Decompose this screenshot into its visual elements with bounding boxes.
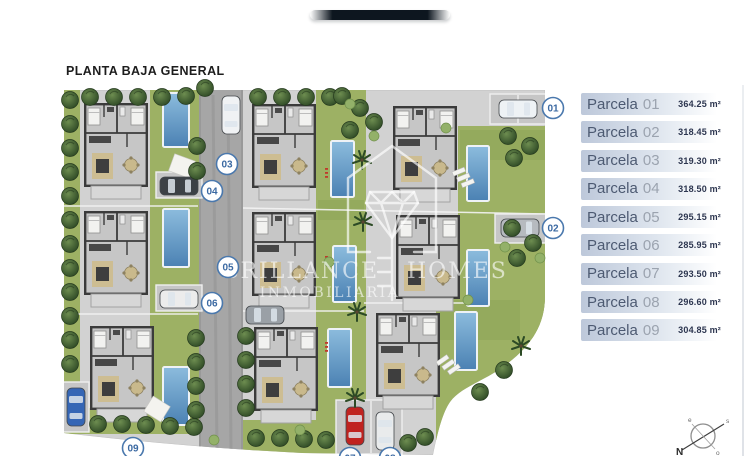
compass-north-label: N — [676, 447, 683, 456]
parcel-label: Parcela — [587, 124, 638, 141]
parcel-number: 05 — [643, 209, 660, 226]
tree-icon — [522, 138, 539, 155]
compass-rose: N e s o — [672, 412, 742, 456]
tree-icon — [274, 89, 291, 106]
tree-icon — [500, 128, 517, 145]
plan-marker: 05 — [218, 257, 239, 278]
tree-icon — [472, 384, 489, 401]
parcel-number: 09 — [643, 322, 660, 339]
parcel-number: 07 — [643, 265, 660, 282]
parcel-label: Parcela — [587, 152, 638, 169]
house-plan — [255, 328, 317, 423]
brochure-page: PLANTA BAJA GENERAL — [0, 0, 756, 456]
house-plan — [85, 104, 147, 199]
parcel-row: Parcela 05 295.15 m² — [581, 206, 747, 228]
tree-icon — [154, 89, 171, 106]
tree-icon — [366, 114, 383, 131]
flowers-icon — [325, 342, 328, 352]
tree-icon — [238, 328, 255, 345]
tree-icon — [400, 435, 417, 452]
tree-icon — [238, 376, 255, 393]
bush-icon — [209, 435, 219, 445]
bush-icon — [345, 99, 355, 109]
parcel-area: 295.15 m² — [678, 212, 721, 222]
bush-icon — [369, 131, 379, 141]
tree-icon — [272, 430, 289, 447]
plan-marker: 03 — [217, 154, 238, 175]
tree-icon — [197, 80, 214, 97]
car-icon — [346, 407, 364, 445]
parcel-row: Parcela 06 285.95 m² — [581, 234, 747, 256]
parcel-number: 02 — [643, 124, 660, 141]
tree-icon — [62, 164, 79, 181]
tree-icon — [188, 354, 205, 371]
car-icon — [499, 100, 537, 118]
tree-icon — [496, 362, 513, 379]
plan-marker: 01 — [543, 98, 564, 119]
tree-icon — [62, 212, 79, 229]
flowers-icon — [325, 168, 328, 178]
parcel-area: 285.95 m² — [678, 240, 721, 250]
parcel-row: Parcela 02 318.45 m² — [581, 121, 747, 143]
tree-icon — [62, 356, 79, 373]
parcel-row: Parcela 03 319.30 m² — [581, 150, 747, 172]
tree-icon — [130, 89, 147, 106]
tree-icon — [248, 430, 265, 447]
car-icon — [246, 306, 284, 324]
parcel-label: Parcela — [587, 237, 638, 254]
car-icon — [160, 177, 198, 195]
parcel-number: 03 — [643, 152, 660, 169]
tree-icon — [178, 88, 195, 105]
parcel-number: 06 — [643, 237, 660, 254]
tree-icon — [318, 432, 335, 449]
page-edge-line — [742, 85, 744, 456]
tree-icon — [250, 89, 267, 106]
tree-icon — [189, 138, 206, 155]
plan-marker: 09 — [123, 438, 144, 456]
parcel-row: Parcela 01 364.25 m² — [581, 93, 747, 115]
svg-text:02: 02 — [547, 224, 559, 235]
parcel-row: Parcela 04 318.50 m² — [581, 178, 747, 200]
parcel-area: 318.50 m² — [678, 184, 721, 194]
tree-icon — [62, 284, 79, 301]
tree-icon — [238, 352, 255, 369]
parcel-label: Parcela — [587, 96, 638, 113]
tree-icon — [298, 89, 315, 106]
parcel-number: 04 — [643, 180, 660, 197]
parcel-area: 293.50 m² — [678, 269, 721, 279]
parcel-area: 296.60 m² — [678, 297, 721, 307]
plan-marker: 02 — [543, 218, 564, 239]
tree-icon — [62, 236, 79, 253]
tree-icon — [106, 89, 123, 106]
tree-icon — [188, 330, 205, 347]
svg-text:09: 09 — [127, 444, 139, 455]
tree-icon — [138, 417, 155, 434]
compass-east-label: e — [688, 417, 692, 424]
bush-icon — [535, 253, 545, 263]
svg-text:BRILLANCE: BRILLANCE — [222, 259, 379, 284]
tree-icon — [62, 92, 79, 109]
bush-icon — [500, 242, 510, 252]
car-icon — [222, 96, 240, 134]
compass-west-label: o — [716, 450, 720, 456]
bush-icon — [463, 295, 473, 305]
tree-icon — [342, 122, 359, 139]
car-icon — [160, 290, 198, 308]
tree-icon — [62, 308, 79, 325]
house-plan — [377, 314, 439, 409]
tree-icon — [186, 419, 203, 436]
svg-text:INMOBILIARIA: INMOBILIARIA — [260, 285, 401, 301]
parcel-row: Parcela 08 296.60 m² — [581, 291, 747, 313]
tree-icon — [62, 260, 79, 277]
tree-icon — [188, 378, 205, 395]
car-icon — [376, 412, 394, 450]
house-plan — [253, 105, 315, 200]
parcel-label: Parcela — [587, 322, 638, 339]
tree-icon — [62, 332, 79, 349]
tree-icon — [90, 416, 107, 433]
parcel-label: Parcela — [587, 294, 638, 311]
tree-icon — [506, 150, 523, 167]
tree-icon — [238, 400, 255, 417]
svg-text:03: 03 — [221, 160, 233, 171]
house-plan — [91, 327, 153, 422]
parcel-area: 364.25 m² — [678, 99, 721, 109]
tree-icon — [504, 220, 521, 237]
parcel-number: 08 — [643, 294, 660, 311]
bush-icon — [441, 123, 451, 133]
tree-icon — [162, 418, 179, 435]
svg-text:01: 01 — [547, 104, 559, 115]
tree-icon — [62, 116, 79, 133]
svg-text:04: 04 — [206, 187, 218, 198]
parcel-row: Parcela 07 293.50 m² — [581, 263, 747, 285]
parcel-list-panel: Parcela 01 364.25 m² Parcela 02 318.45 m… — [581, 93, 747, 348]
tree-icon — [62, 140, 79, 157]
tree-icon — [525, 235, 542, 252]
tree-icon — [417, 429, 434, 446]
tree-icon — [509, 250, 526, 267]
tree-icon — [188, 402, 205, 419]
bush-icon — [295, 425, 305, 435]
tree-icon — [189, 163, 206, 180]
tree-icon — [62, 188, 79, 205]
parcel-area: 318.45 m² — [678, 127, 721, 137]
tree-icon — [114, 416, 131, 433]
tree-icon — [82, 89, 99, 106]
parcel-area: 304.85 m² — [678, 325, 721, 335]
svg-text:06: 06 — [206, 299, 218, 310]
svg-text:05: 05 — [222, 263, 234, 274]
car-icon — [67, 388, 85, 426]
plan-marker: 04 — [202, 181, 223, 202]
svg-text:HOMES: HOMES — [407, 259, 508, 284]
parcel-label: Parcela — [587, 180, 638, 197]
parcel-row: Parcela 09 304.85 m² — [581, 319, 747, 341]
parcel-label: Parcela — [587, 265, 638, 282]
compass-south-label: s — [726, 418, 730, 425]
parcel-label: Parcela — [587, 209, 638, 226]
parcel-number: 01 — [643, 96, 660, 113]
parcel-area: 319.30 m² — [678, 156, 721, 166]
house-plan — [85, 212, 147, 307]
plan-marker: 06 — [202, 293, 223, 314]
